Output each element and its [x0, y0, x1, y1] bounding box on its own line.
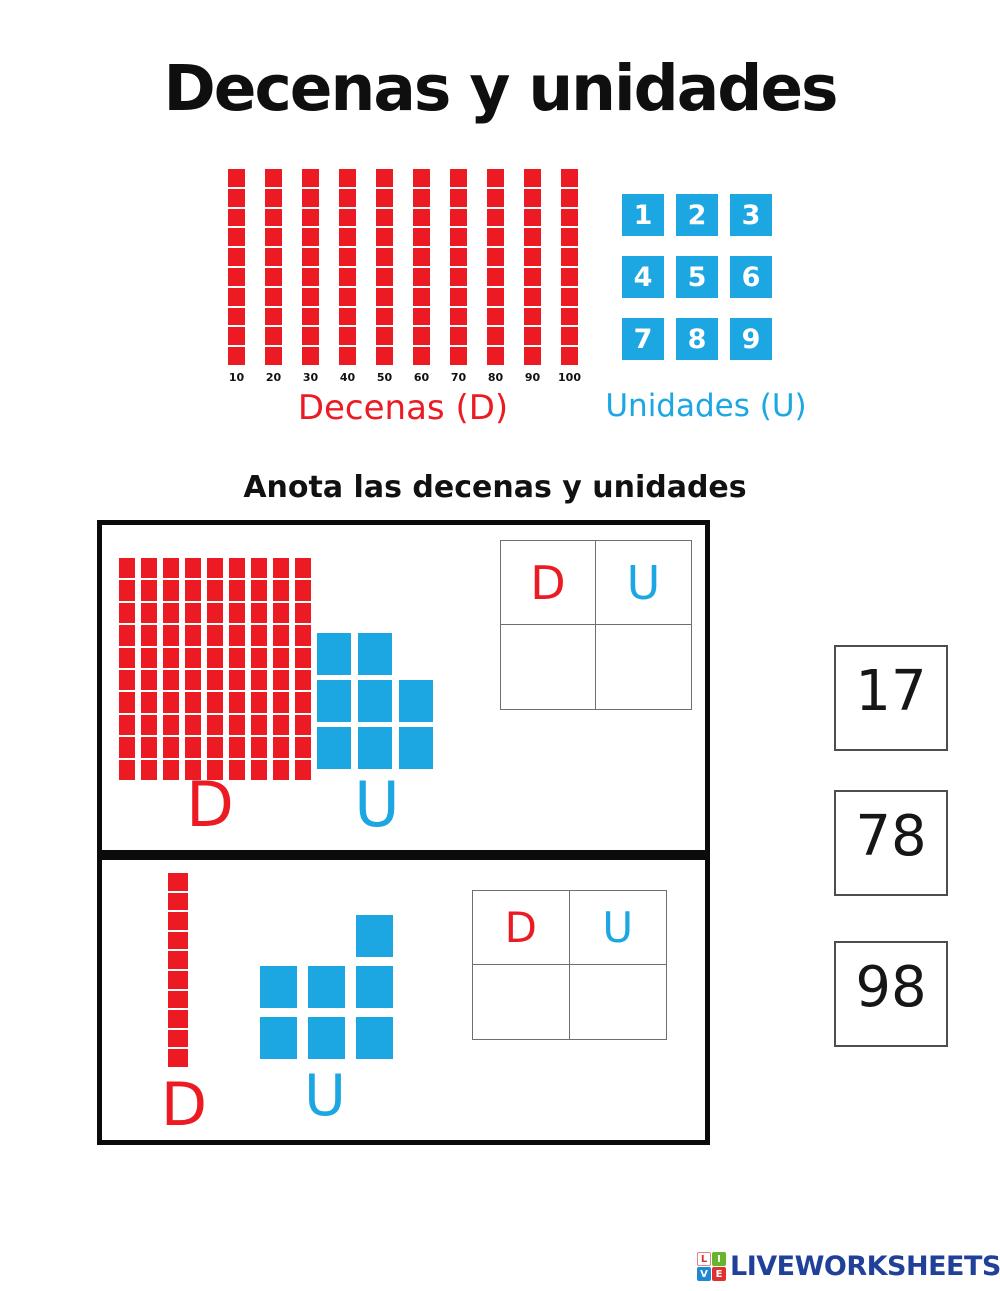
tens-bar	[450, 169, 467, 365]
exercise-box-2: D U D U	[97, 855, 710, 1145]
bar-value-label: 90	[524, 371, 541, 384]
logo-letter-v: V	[697, 1267, 711, 1281]
du-table-units-answer-cell[interactable]	[570, 965, 667, 1039]
bar-value-label: 30	[302, 371, 319, 384]
du-table-tens-header: D	[473, 891, 570, 965]
exercise2-tens-bars	[168, 873, 188, 1067]
du-table-units-header: U	[596, 541, 691, 625]
exercise2-units-letter: U	[285, 1063, 365, 1129]
unit-number-square: 5	[676, 256, 718, 298]
logo-letter-l: L	[697, 1252, 711, 1266]
answer-card-78[interactable]: 78	[834, 790, 948, 896]
du-table-units-header: U	[570, 891, 667, 965]
unit-number-square: 6	[730, 256, 772, 298]
unit-number-square: 3	[730, 194, 772, 236]
bar-value-label: 60	[413, 371, 430, 384]
exercise1-tens-letter: D	[170, 768, 250, 841]
unit-square	[358, 680, 392, 722]
bar-value-label: 100	[561, 371, 578, 384]
tens-bar	[207, 558, 223, 780]
bar-value-label: 70	[450, 371, 467, 384]
exercise2-du-table: D U	[472, 890, 667, 1040]
unit-square	[317, 727, 351, 769]
du-table-tens-answer-cell[interactable]	[501, 625, 596, 709]
tens-bar	[561, 169, 578, 365]
tens-bar	[295, 558, 311, 780]
tens-bar	[487, 169, 504, 365]
unit-number-square: 7	[622, 318, 664, 360]
logo-letter-i: I	[712, 1252, 726, 1266]
unit-number-square: 9	[730, 318, 772, 360]
tens-bar	[302, 169, 319, 365]
exercise1-du-table: D U	[500, 540, 692, 710]
bar-value-label: 40	[339, 371, 356, 384]
instruction-heading: Anota las decenas y unidades	[95, 470, 895, 505]
unit-square-empty	[399, 633, 433, 675]
tens-legend-bars	[228, 169, 578, 365]
tens-bar	[376, 169, 393, 365]
tens-bar	[251, 558, 267, 780]
liveworksheets-brand-text: LIVEWORKSHEETS	[730, 1251, 1000, 1282]
unit-number-square: 1	[622, 194, 664, 236]
tens-bar	[265, 169, 282, 365]
tens-legend-values: 102030405060708090100	[228, 371, 578, 384]
unit-square	[356, 1017, 393, 1059]
unit-square	[317, 633, 351, 675]
unit-number-square: 8	[676, 318, 718, 360]
exercise2-unit-squares	[260, 915, 393, 1059]
unit-square	[358, 633, 392, 675]
bar-value-label: 50	[376, 371, 393, 384]
exercise1-unit-squares	[317, 633, 433, 769]
exercise-box-1: D U D U	[97, 520, 710, 855]
answer-card-98[interactable]: 98	[834, 941, 948, 1047]
answer-card-17[interactable]: 17	[834, 645, 948, 751]
bar-value-label: 10	[228, 371, 245, 384]
unit-number-square: 2	[676, 194, 718, 236]
unit-square	[399, 727, 433, 769]
tens-bar	[524, 169, 541, 365]
tens-bar	[119, 558, 135, 780]
unit-square	[317, 680, 351, 722]
bar-value-label: 20	[265, 371, 282, 384]
unit-square	[260, 1017, 297, 1059]
unit-square-empty	[308, 915, 345, 957]
page-title: Decenas y unidades	[0, 52, 1000, 125]
du-table-tens-answer-cell[interactable]	[473, 965, 570, 1039]
unit-square	[308, 1017, 345, 1059]
tens-bar	[141, 558, 157, 780]
tens-bar	[185, 558, 201, 780]
exercise2-tens-letter: D	[144, 1070, 224, 1140]
tens-bar	[339, 169, 356, 365]
worksheet-page: Decenas y unidades 102030405060708090100…	[0, 0, 1000, 1291]
unit-square	[260, 966, 297, 1008]
tens-legend-caption: Decenas (D)	[238, 388, 568, 428]
liveworksheets-footer: L I V E LIVEWORKSHEETS	[697, 1251, 1000, 1282]
exercise1-units-letter: U	[337, 768, 417, 841]
unit-number-square: 4	[622, 256, 664, 298]
tens-bar	[273, 558, 289, 780]
tens-bar	[229, 558, 245, 780]
tens-bar	[163, 558, 179, 780]
tens-bar	[168, 873, 188, 1067]
units-legend-caption: Unidades (U)	[600, 388, 812, 424]
unit-square	[356, 915, 393, 957]
unit-square	[358, 727, 392, 769]
unit-square	[356, 966, 393, 1008]
du-table-tens-header: D	[501, 541, 596, 625]
unit-square	[308, 966, 345, 1008]
unit-square-empty	[260, 915, 297, 957]
bar-value-label: 80	[487, 371, 504, 384]
tens-bar	[413, 169, 430, 365]
tens-bar	[228, 169, 245, 365]
liveworksheets-logo-icon: L I V E	[697, 1252, 726, 1281]
unit-square	[399, 680, 433, 722]
logo-letter-e: E	[712, 1267, 726, 1281]
exercise1-tens-bars	[119, 558, 311, 780]
du-table-units-answer-cell[interactable]	[596, 625, 691, 709]
units-legend-grid: 123456789	[622, 194, 772, 360]
